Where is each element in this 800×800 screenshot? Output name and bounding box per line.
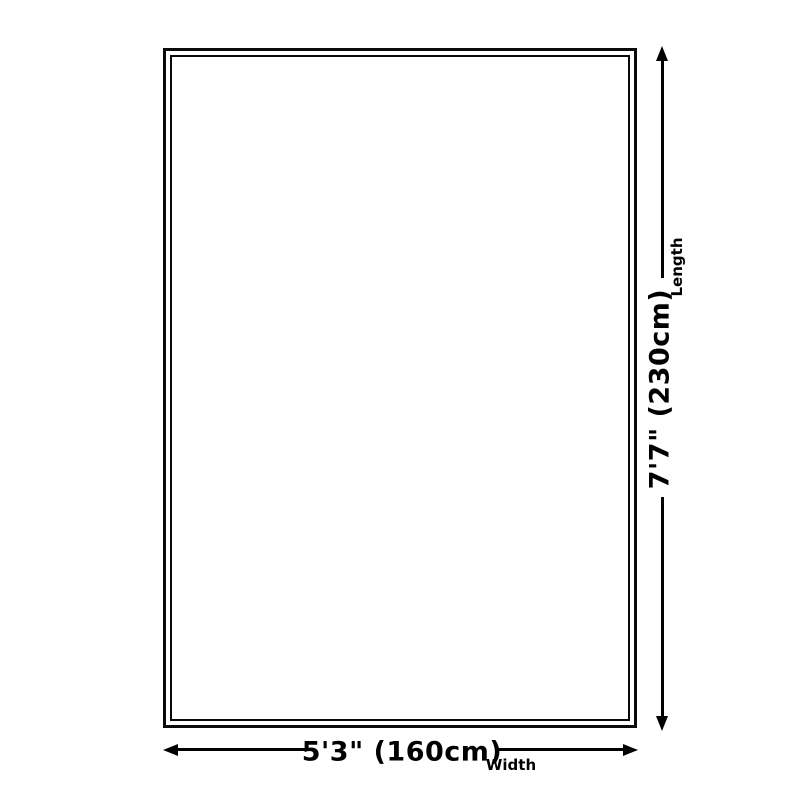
width-arrow-right-line	[495, 748, 625, 751]
length-value: 7'7" (230cm)	[645, 289, 676, 489]
width-value: 5'3" (160cm)	[302, 737, 502, 768]
arrowhead-down-icon	[656, 716, 668, 731]
length-label: Length	[668, 238, 686, 297]
product-outline-inner-border	[170, 55, 630, 721]
dimension-diagram: Length 7'7" (230cm) 5'3" (160cm) Width	[0, 0, 800, 800]
arrowhead-right-icon	[623, 744, 638, 756]
arrowhead-left-icon	[163, 744, 178, 756]
width-label: Width	[486, 756, 536, 774]
length-arrow-lower-line	[661, 497, 664, 717]
length-arrow-upper-line	[661, 58, 664, 278]
product-outline-outer-border	[163, 48, 637, 728]
width-arrow-left-line	[177, 748, 310, 751]
